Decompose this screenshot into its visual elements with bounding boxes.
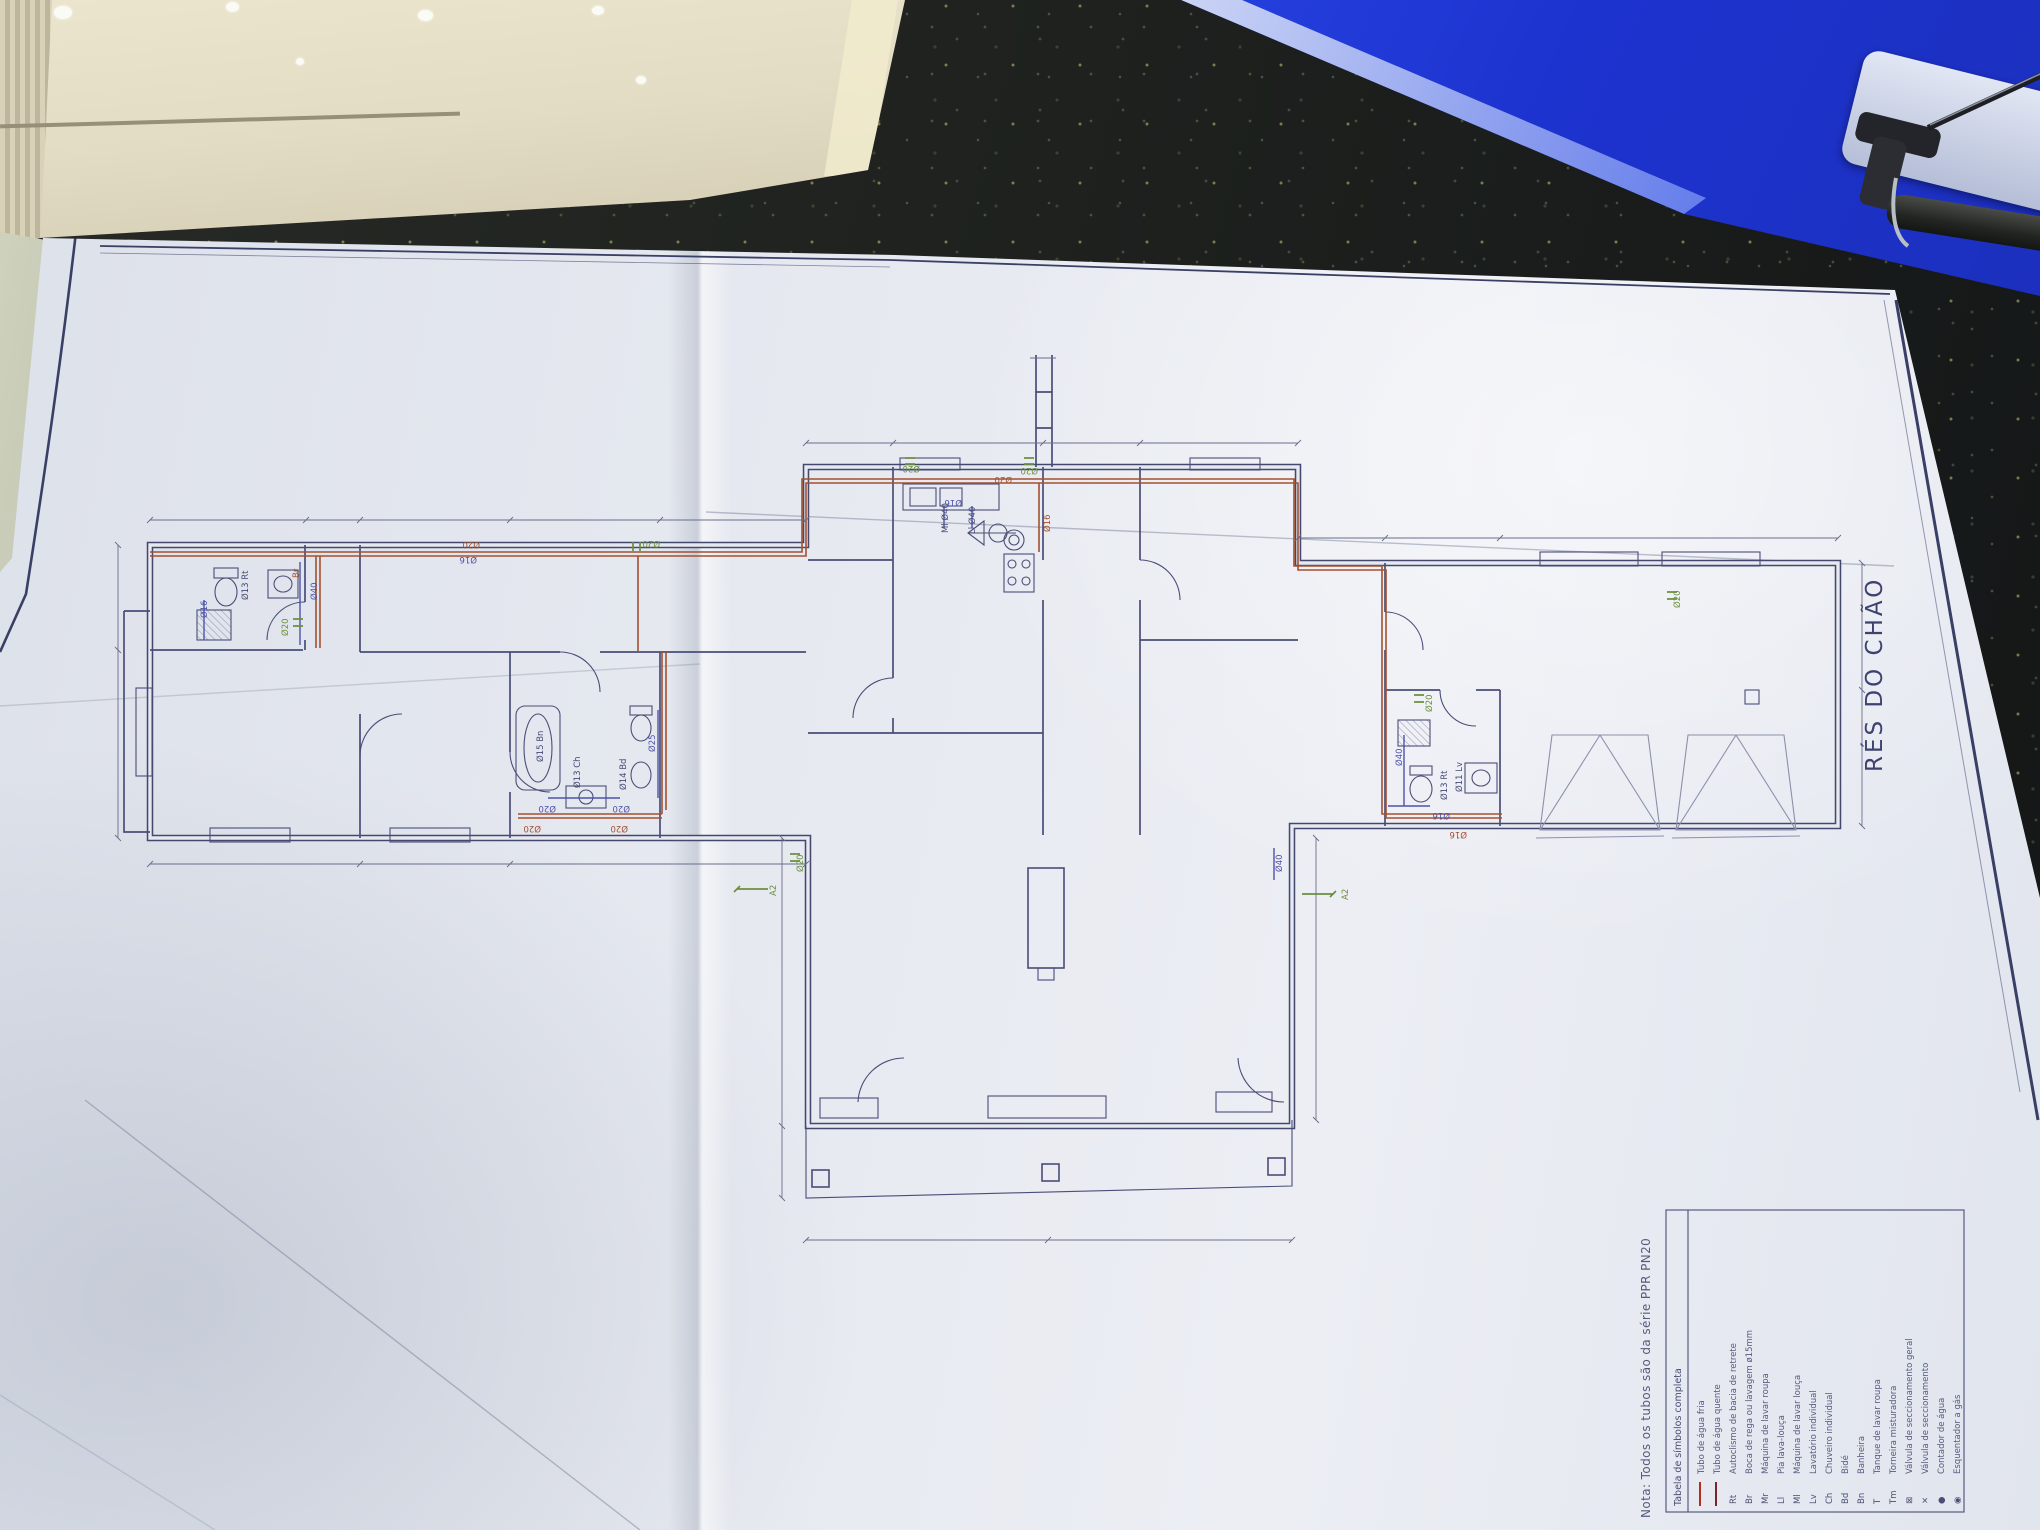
section-label: A2	[1341, 889, 1351, 900]
legend-row: Torneira misturadora	[1889, 1386, 1899, 1475]
pipe-label: Ø20	[538, 803, 556, 814]
fixture-label: Ø13 Rt	[1439, 770, 1450, 800]
toilet-tank	[630, 706, 652, 715]
legend-row: Contador de água	[1937, 1398, 1947, 1474]
legend-row: Pia lava-louça	[1777, 1415, 1787, 1474]
section-label: A2	[769, 885, 779, 896]
foam-spot	[54, 6, 72, 19]
kitchen-sink	[910, 488, 936, 506]
legend-symbol: Ll	[1777, 1497, 1787, 1504]
legend-row: Máquina de lavar roupa	[1761, 1373, 1771, 1474]
legend-symbol: ✕	[1921, 1497, 1931, 1504]
legend-row: Autoclismo de bacia de retrete	[1729, 1343, 1739, 1474]
pipe-label: Ø20	[902, 463, 920, 474]
legend-symbol: ●	[1937, 1497, 1947, 1504]
garage-door-symbols	[1536, 735, 1800, 838]
legend-row: Banheira	[1857, 1436, 1867, 1474]
terrace-column	[812, 1170, 829, 1187]
bidet	[631, 762, 651, 788]
legend-row: Válvula de seccionamento	[1921, 1363, 1931, 1474]
legend-symbol: Mr	[1761, 1493, 1771, 1504]
legend-symbol: Ch	[1825, 1493, 1835, 1504]
paper-creases	[0, 512, 1894, 1530]
legend-symbol: Rt	[1729, 1494, 1739, 1504]
pipe-label: Ø20	[994, 474, 1012, 485]
fixture-label: Ø15 Bn	[535, 731, 546, 762]
roof-light	[1745, 690, 1759, 704]
legend-row: Chuveiro individual	[1825, 1392, 1835, 1474]
pipe-label: Ø16	[459, 554, 477, 565]
foam-spot	[418, 10, 433, 21]
stove	[1004, 554, 1034, 592]
legend-symbol: Lv	[1809, 1494, 1819, 1504]
fixture-label: Ll Ø40	[967, 507, 978, 534]
legend-row: Tubo de água quente	[1713, 1384, 1723, 1475]
legend-row: Máquina de lavar louça	[1793, 1375, 1803, 1474]
foam-spot	[592, 6, 604, 15]
fixture-label: Ø14 Bd	[618, 759, 629, 790]
legend-symbol: ⊠	[1905, 1497, 1915, 1504]
pipe-label: Ø20	[795, 854, 806, 872]
interior-walls	[124, 355, 1500, 838]
dimension-lines	[115, 358, 1865, 1243]
floor-title: RÉS DO CHÃO	[1860, 577, 1888, 772]
legend-symbol: Tm	[1889, 1491, 1899, 1505]
pipe-labels: Ø20 Ø16 Ø20 Br Ø16 Ø13 Rt Ø40 Ø20 Ø15 Bn…	[199, 463, 1683, 900]
legend-symbol: ◉	[1953, 1497, 1963, 1504]
legend-symbol: Bn	[1857, 1493, 1867, 1504]
legend-symbol: Bd	[1841, 1493, 1851, 1504]
washbasin	[566, 786, 606, 808]
toilet	[1410, 776, 1432, 802]
pipe-label: Ø20	[280, 618, 291, 636]
pipe-label: Ø20	[1020, 465, 1038, 476]
fireplace	[1028, 868, 1064, 968]
foam-spot	[226, 2, 239, 12]
pipe-label: Ø20	[462, 539, 480, 550]
plan-note: Nota: Todos os tubos são da série PPR PN…	[1639, 1238, 1653, 1518]
pipe-label: Ø25	[647, 734, 658, 752]
fixture-label: Br	[292, 568, 302, 578]
legend-row: Tubo de água fria	[1697, 1400, 1707, 1475]
section-markers	[734, 886, 1336, 897]
fixture-label: Ø13 Rt	[240, 570, 251, 600]
fixture-label: Ø11 Lv	[1454, 762, 1465, 792]
pipe-label: Ø40	[1394, 748, 1405, 766]
toilet	[215, 578, 237, 606]
pipe-label: Ø16	[1042, 514, 1053, 532]
terrace	[806, 1120, 1292, 1198]
drain-pipes-blue	[204, 506, 1430, 880]
box-lid-edge	[0, 112, 460, 129]
foam-spot	[636, 76, 646, 84]
washbasin	[1465, 763, 1497, 793]
pipe-label: Ø20	[523, 823, 541, 834]
legend-symbol: Ml	[1793, 1494, 1803, 1504]
legend-symbol: T	[1873, 1498, 1883, 1505]
windows	[136, 458, 1760, 1118]
junction-marks-green	[293, 458, 1677, 861]
sheet-border	[0, 232, 2038, 1120]
legend-symbol: Br	[1745, 1494, 1755, 1504]
pipe-label: Ø20	[1424, 694, 1435, 712]
terrace-column	[1042, 1164, 1059, 1181]
pipe-label: Ø16	[199, 600, 210, 618]
foam-spot	[296, 58, 304, 65]
fixtures	[197, 484, 1759, 980]
legend-row: Bidé	[1840, 1455, 1851, 1474]
shower-tray	[1398, 720, 1430, 746]
pipe-label: Ø40	[309, 582, 320, 600]
pipe-label: Ø20	[610, 823, 628, 834]
legend-row: Tanque de lavar roupa	[1873, 1379, 1883, 1475]
toilet-tank	[214, 568, 238, 578]
toilet-tank	[1410, 766, 1432, 775]
pipe-label: Ø16	[944, 497, 962, 508]
legend-row: Esquentador a gás	[1953, 1394, 1963, 1474]
legend-table: Tabela de símbolos completa Tubo de água…	[1666, 1210, 1964, 1512]
legend-row: Boca de rega ou lavagem ø15mm	[1745, 1330, 1755, 1474]
terrace-column	[1268, 1158, 1285, 1175]
fixture-label: Ø13 Ch	[572, 756, 583, 788]
pipe-label: Ø20	[1672, 590, 1683, 608]
legend-row: Válvula de seccionamento geral	[1905, 1338, 1915, 1474]
legend-header: Tabela de símbolos completa	[1673, 1368, 1684, 1507]
photo-of-floorplan: Ø20 Ø16 Ø20 Br Ø16 Ø13 Rt Ø40 Ø20 Ø15 Bn…	[0, 0, 2040, 1530]
pipe-label: Ø20	[612, 803, 630, 814]
pipe-label: Ø40	[1274, 854, 1285, 872]
legend-row: Lavatório individual	[1808, 1390, 1819, 1474]
pipe-label: Ø16	[1449, 829, 1467, 840]
pipe-label: Ø20	[642, 538, 660, 549]
pipe-label: Ø16	[1432, 810, 1450, 821]
